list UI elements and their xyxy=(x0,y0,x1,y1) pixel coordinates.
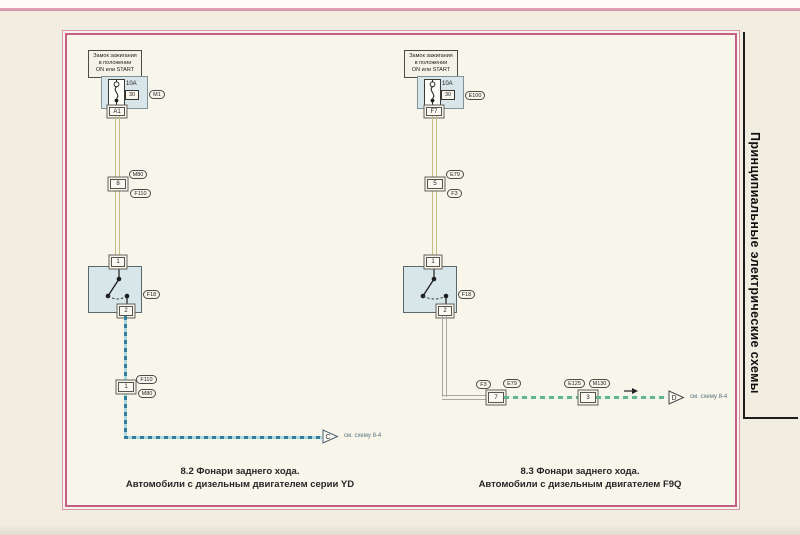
see-diagram-arrow: C xyxy=(322,429,339,444)
top-pink-rule xyxy=(0,8,800,11)
reverse-lamp-wire xyxy=(442,316,447,397)
caption-title: 8.3 Фонари заднего хода. xyxy=(420,466,740,479)
harness-label-oval: F3 xyxy=(447,189,462,198)
manual-page: Замок зажигания в положении ON или START… xyxy=(0,0,800,535)
switch-terminal: 2 xyxy=(438,306,452,316)
caption-subtitle: Автомобили с дизельным двигателем серии … xyxy=(80,479,400,492)
harness-label-oval: F110 xyxy=(136,375,157,384)
connector-label-oval: F18 xyxy=(458,290,475,299)
fuse-window xyxy=(424,79,441,107)
ignition-label-line: в положении xyxy=(89,60,141,67)
connector-pin: 7 xyxy=(488,392,504,403)
fuse-rating: 10A xyxy=(442,81,453,87)
ignition-switch-label: Замок зажигания в положении ON или START xyxy=(88,50,142,78)
sidebar-title: Принципиальные электрические схемы xyxy=(746,132,764,422)
caption-subtitle: Автомобили с дизельным двигателем F9Q xyxy=(420,479,740,492)
connector-pin: 5 xyxy=(427,179,443,189)
fuse-icon xyxy=(109,80,124,106)
connector-pin: 3 xyxy=(580,392,596,403)
diagram-caption: 8.2 Фонари заднего хода. Автомобили с ди… xyxy=(80,466,400,491)
diagram-caption: 8.3 Фонари заднего хода. Автомобили с ди… xyxy=(420,466,740,491)
sidebar-rule-vertical xyxy=(743,32,745,418)
unit-label-oval: M1 xyxy=(149,90,165,99)
connector-pin: F7 xyxy=(426,107,442,116)
see-diagram-note: см. схему 8-4 xyxy=(344,433,381,439)
reverse-lamp-wire xyxy=(124,436,322,439)
reverse-lamp-wire xyxy=(442,395,490,400)
ignition-label-line: ON или START xyxy=(89,67,141,74)
ignition-switch-label: Замок зажигания в положении ON или START xyxy=(404,50,458,78)
connector-pin: 8 xyxy=(110,179,126,189)
ignition-label-line: в положении xyxy=(405,60,457,67)
fuse-box: 10A 30 xyxy=(417,76,464,109)
caption-title: 8.2 Фонари заднего хода. xyxy=(80,466,400,479)
connector-pin: A1 xyxy=(109,107,125,116)
fuse-window xyxy=(108,79,125,107)
fuse-rating: 10A xyxy=(126,81,137,87)
harness-label-oval: E79 xyxy=(446,170,464,179)
switch-contacts-icon xyxy=(89,267,141,312)
see-diagram-note: см. схему 8-4 xyxy=(690,394,727,400)
harness-label-oval: M80 xyxy=(138,389,156,398)
arrow-letter: D xyxy=(672,395,677,402)
harness-label-oval: F3 xyxy=(476,380,491,389)
fuse-slot-number: 30 xyxy=(125,90,139,100)
switch-terminal: 2 xyxy=(119,306,133,316)
reverse-lamp-wire xyxy=(124,316,127,437)
reverse-lamp-wire xyxy=(504,396,582,399)
unit-label-oval: E100 xyxy=(465,91,485,100)
harness-label-oval: M80 xyxy=(129,170,147,179)
see-diagram-arrow: D xyxy=(668,390,685,405)
harness-label-oval: M130 xyxy=(589,379,610,388)
direction-arrow-icon xyxy=(624,387,638,395)
harness-label-oval: E79 xyxy=(503,379,521,388)
fuse-box: 10A 30 xyxy=(101,76,148,109)
arrow-letter: C xyxy=(326,434,331,441)
switch-terminal: 1 xyxy=(426,257,440,267)
connector-label-oval: F18 xyxy=(143,290,160,299)
fuse-icon xyxy=(425,80,440,106)
reverse-lamp-wire xyxy=(596,396,668,399)
reverse-switch-box xyxy=(88,266,142,313)
ignition-label-line: ON или START xyxy=(405,67,457,74)
switch-terminal: 1 xyxy=(111,257,125,267)
fuse-slot-number: 30 xyxy=(441,90,455,100)
harness-label-oval: E125 xyxy=(564,379,585,388)
connector-pin: 1 xyxy=(118,382,134,392)
scan-top-edge xyxy=(0,0,800,8)
ignition-label-line: Замок зажигания xyxy=(89,53,141,60)
harness-label-oval: F110 xyxy=(130,189,151,198)
ignition-label-line: Замок зажигания xyxy=(405,53,457,60)
scan-bottom-shade xyxy=(0,525,800,535)
